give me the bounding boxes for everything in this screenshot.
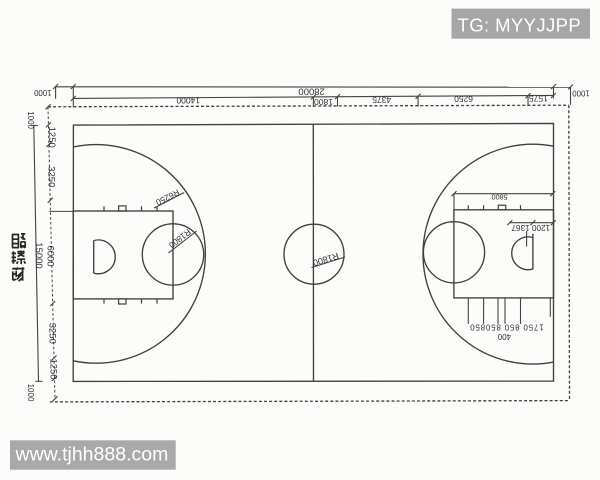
svg-text:6000: 6000 <box>45 245 56 266</box>
svg-text:3250: 3250 <box>47 323 58 344</box>
svg-text:TG: MYYJJPP: TG: MYYJJPP <box>458 15 582 36</box>
svg-text:14000: 14000 <box>176 96 200 106</box>
svg-text:1250: 1250 <box>46 127 57 148</box>
svg-text:400: 400 <box>497 332 511 341</box>
svg-text:15000: 15000 <box>33 242 44 268</box>
svg-text:1250: 1250 <box>48 358 59 379</box>
svg-text:www.tjhh888.com: www.tjhh888.com <box>15 444 169 466</box>
svg-text:1000: 1000 <box>26 111 35 129</box>
svg-text:1575: 1575 <box>529 94 548 104</box>
svg-text:1800: 1800 <box>314 97 333 107</box>
svg-text:4375: 4375 <box>372 95 391 105</box>
svg-text:1200 1367: 1200 1367 <box>511 223 550 232</box>
svg-text:1000: 1000 <box>26 384 35 402</box>
svg-text:6250: 6250 <box>454 94 473 104</box>
svg-text:3250: 3250 <box>45 166 56 187</box>
svg-text:5800: 5800 <box>492 193 508 202</box>
svg-text:1750 850 850850: 1750 850 850850 <box>469 323 543 332</box>
svg-text:1000: 1000 <box>572 88 590 97</box>
svg-text:28000: 28000 <box>298 86 324 97</box>
svg-text:1000: 1000 <box>33 88 51 97</box>
